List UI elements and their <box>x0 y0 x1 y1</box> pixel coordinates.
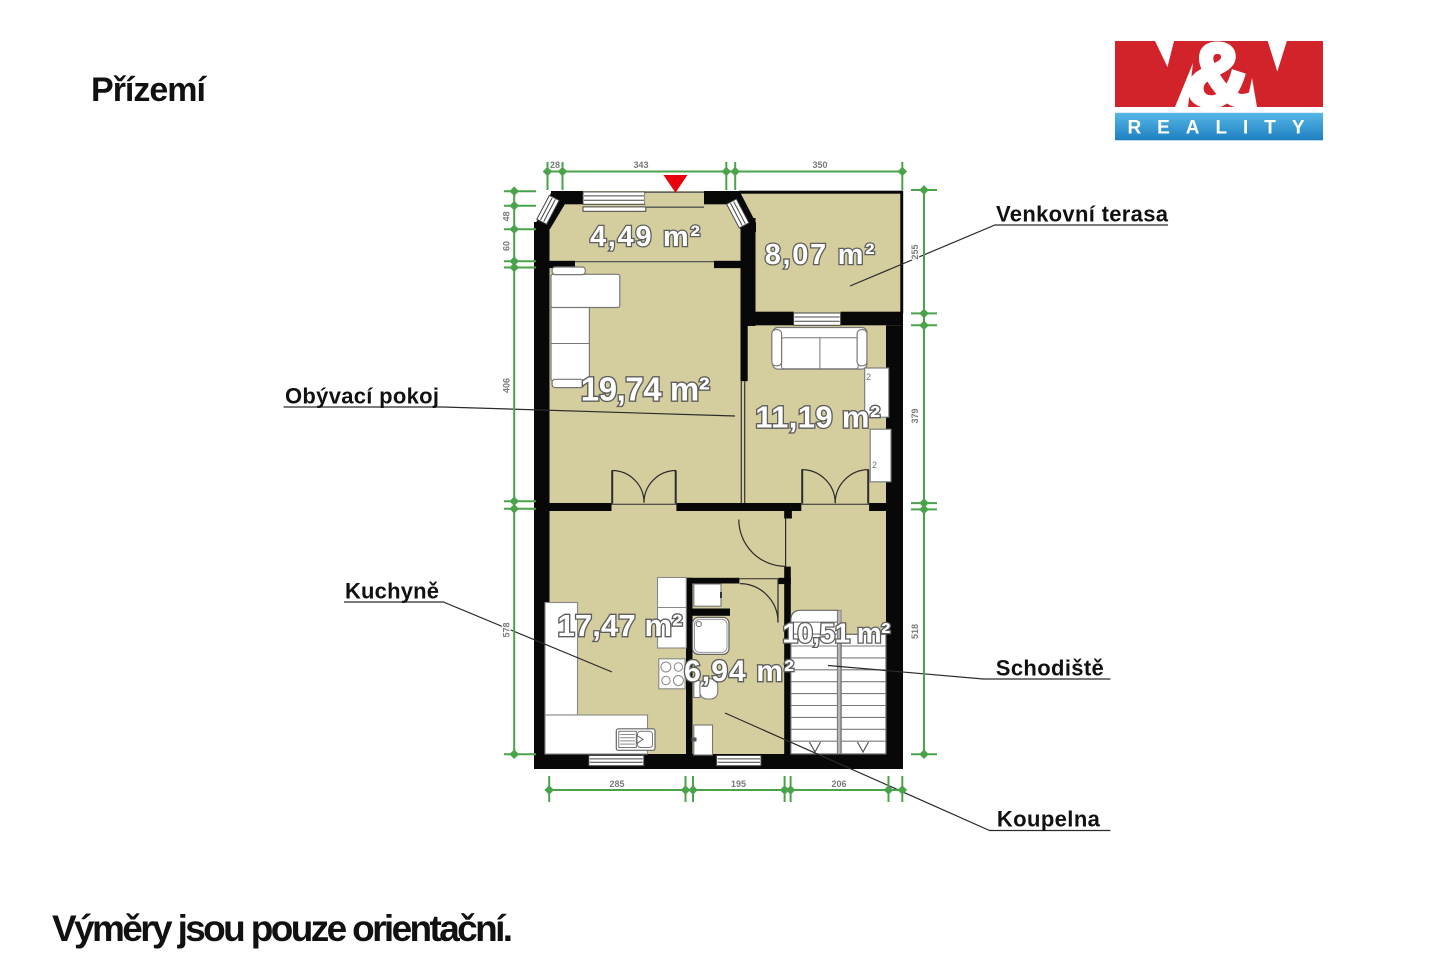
svg-text:206: 206 <box>831 779 846 789</box>
svg-text:518: 518 <box>910 624 920 639</box>
svg-text:17,47 m²: 17,47 m² <box>558 608 683 643</box>
svg-text:Schodiště: Schodiště <box>996 656 1104 681</box>
svg-text:Kuchyně: Kuchyně <box>345 579 439 604</box>
svg-text:&: & <box>1186 25 1250 124</box>
svg-text:285: 285 <box>609 779 624 789</box>
svg-text:60: 60 <box>502 241 512 251</box>
svg-text:343: 343 <box>633 160 648 170</box>
svg-text:Výměry jsou pouze orientační.: Výměry jsou pouze orientační. <box>52 908 513 949</box>
svg-text:Koupelna: Koupelna <box>997 807 1101 832</box>
svg-text:350: 350 <box>812 160 827 170</box>
svg-text:19,74 m²: 19,74 m² <box>581 371 710 408</box>
svg-text:11,19 m²: 11,19 m² <box>755 400 880 435</box>
svg-text:578: 578 <box>502 622 512 637</box>
svg-text:379: 379 <box>910 408 920 423</box>
svg-text:195: 195 <box>731 779 746 789</box>
svg-text:48: 48 <box>502 211 512 221</box>
svg-text:6,94 m²: 6,94 m² <box>684 655 794 688</box>
svg-text:Venkovní terasa: Venkovní terasa <box>996 202 1169 227</box>
svg-text:10,51 m²: 10,51 m² <box>782 618 890 649</box>
svg-text:255: 255 <box>910 244 920 259</box>
svg-text:406: 406 <box>502 378 512 393</box>
svg-text:2: 2 <box>872 460 877 470</box>
svg-text:Přízemí: Přízemí <box>91 71 208 109</box>
svg-text:28: 28 <box>550 160 560 170</box>
svg-text:Obývací pokoj: Obývací pokoj <box>285 384 439 409</box>
svg-text:2: 2 <box>866 372 871 382</box>
